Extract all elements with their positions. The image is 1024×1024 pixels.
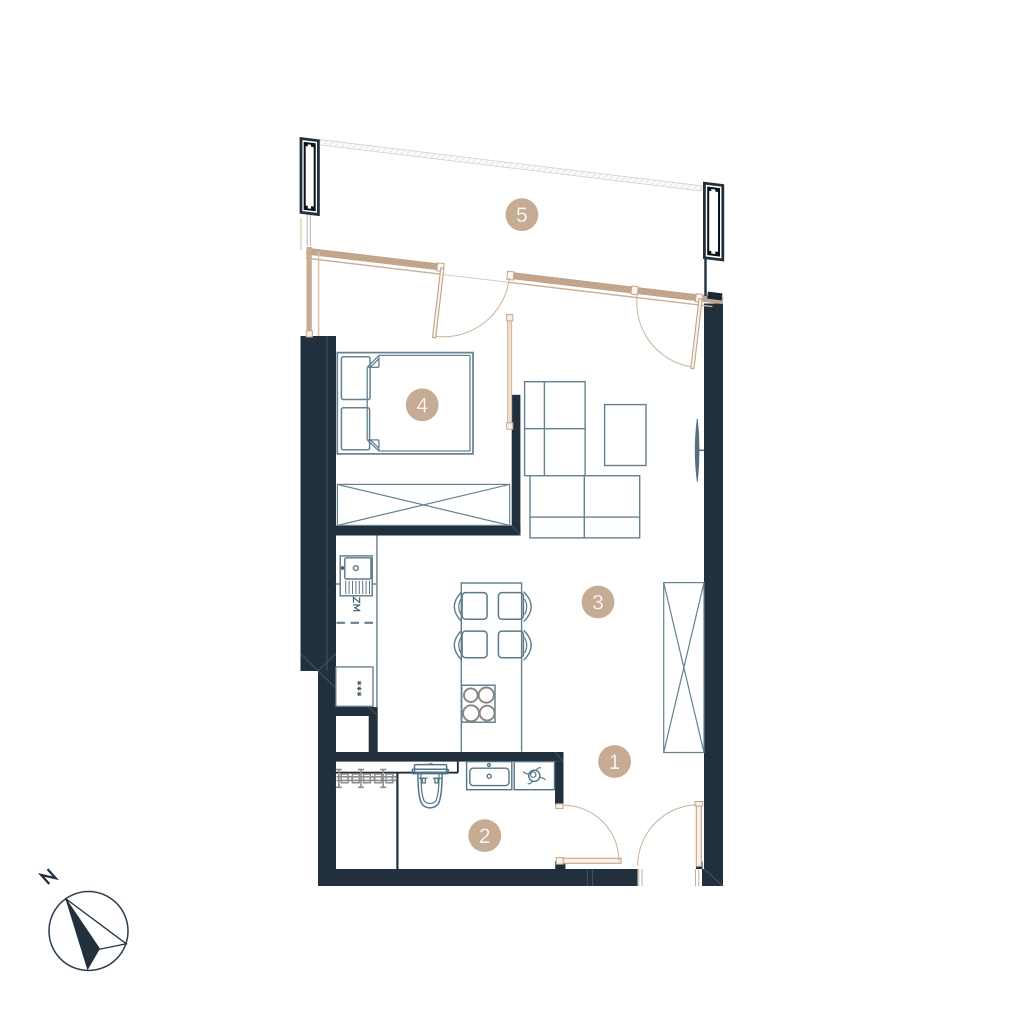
svg-text:3: 3 xyxy=(592,592,604,615)
svg-text:2: 2 xyxy=(479,825,491,848)
svg-text:1: 1 xyxy=(609,751,621,774)
svg-text:5: 5 xyxy=(516,204,528,227)
svg-text:4: 4 xyxy=(416,394,428,417)
